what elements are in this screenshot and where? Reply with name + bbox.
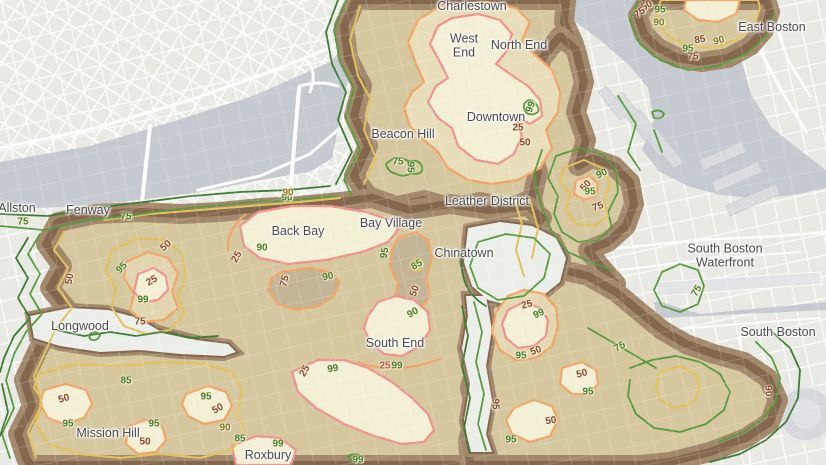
map-canvas[interactable]: CharlestownWest EndNorth EndEast BostonD… bbox=[0, 0, 826, 465]
street-overlay bbox=[0, 0, 826, 465]
map-graphics bbox=[0, 0, 826, 465]
